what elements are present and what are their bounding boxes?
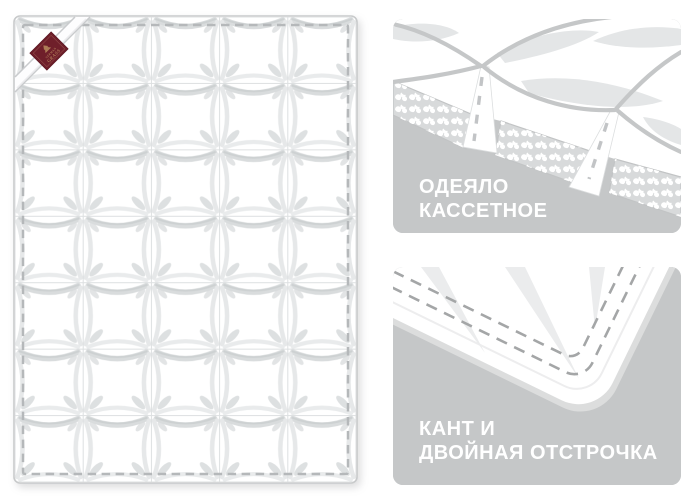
panel-edging: КАНТ И ДВОЙНАЯ ОТСТРОЧКА	[393, 267, 681, 485]
quilted-duvet-illustration: GERMAN GRASS	[13, 15, 358, 485]
edging-panel-title: КАНТ И ДВОЙНАЯ ОТСТРОЧКА	[419, 418, 658, 465]
product-infographic: GERMAN GRASS	[0, 0, 700, 499]
quilt-pattern	[15, 17, 356, 482]
cassette-panel-title: ОДЕЯЛО КАССЕТНОЕ	[419, 176, 547, 223]
edging-title-line1: КАНТ И	[419, 418, 658, 442]
edging-title-line2: ДВОЙНАЯ ОТСТРОЧКА	[419, 442, 658, 466]
cassette-title-line1: ОДЕЯЛО	[419, 176, 547, 200]
panel-cassette: ОДЕЯЛО КАССЕТНОЕ	[393, 19, 681, 233]
cassette-title-line2: КАССЕТНОЕ	[419, 200, 547, 224]
duvet-svg: GERMAN GRASS	[13, 15, 358, 485]
